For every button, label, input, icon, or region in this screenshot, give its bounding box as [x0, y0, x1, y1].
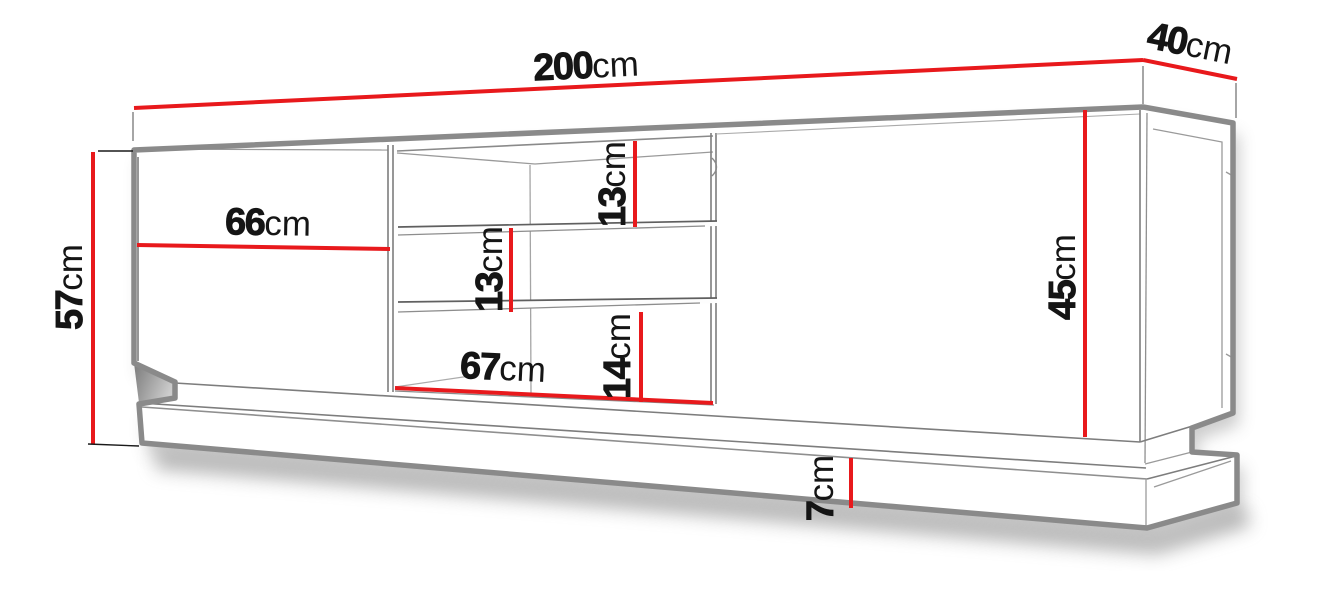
furniture-dimension-diagram: 200cm 40cm 57cm 66cm 45cm 13cm 13cm 14cm…	[0, 0, 1320, 600]
label-57cm: 57cm	[49, 244, 91, 330]
label-7cm: 7cm	[800, 455, 842, 521]
label-14cm: 14cm	[597, 313, 639, 399]
label-13cm-mid: 13cm	[469, 226, 511, 312]
label-67cm: 67cm	[459, 345, 547, 391]
label-200cm: 200cm	[532, 43, 639, 90]
diagram-canvas: 200cm 40cm 57cm 66cm 45cm 13cm 13cm 14cm…	[0, 0, 1320, 600]
tick-57-bottom	[88, 444, 139, 446]
label-13cm-top: 13cm	[592, 141, 634, 227]
label-66cm: 66cm	[225, 201, 312, 244]
label-45cm: 45cm	[1042, 234, 1084, 320]
